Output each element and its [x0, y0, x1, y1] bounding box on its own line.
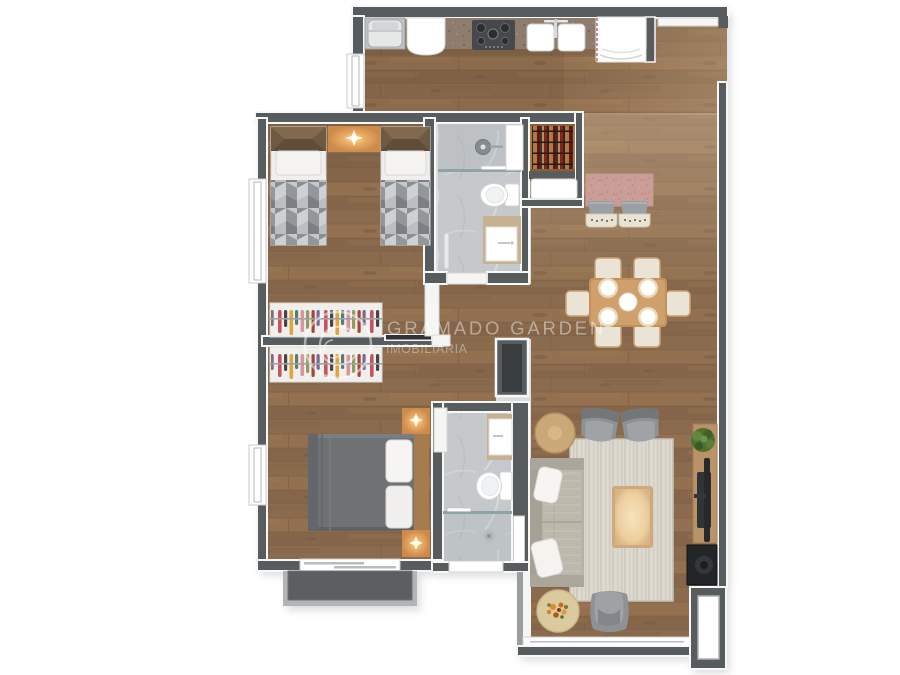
svg-text:IMOBILIÁRIA: IMOBILIÁRIA: [386, 341, 468, 356]
svg-text:GRAMADO GARDEN: GRAMADO GARDEN: [387, 318, 606, 339]
